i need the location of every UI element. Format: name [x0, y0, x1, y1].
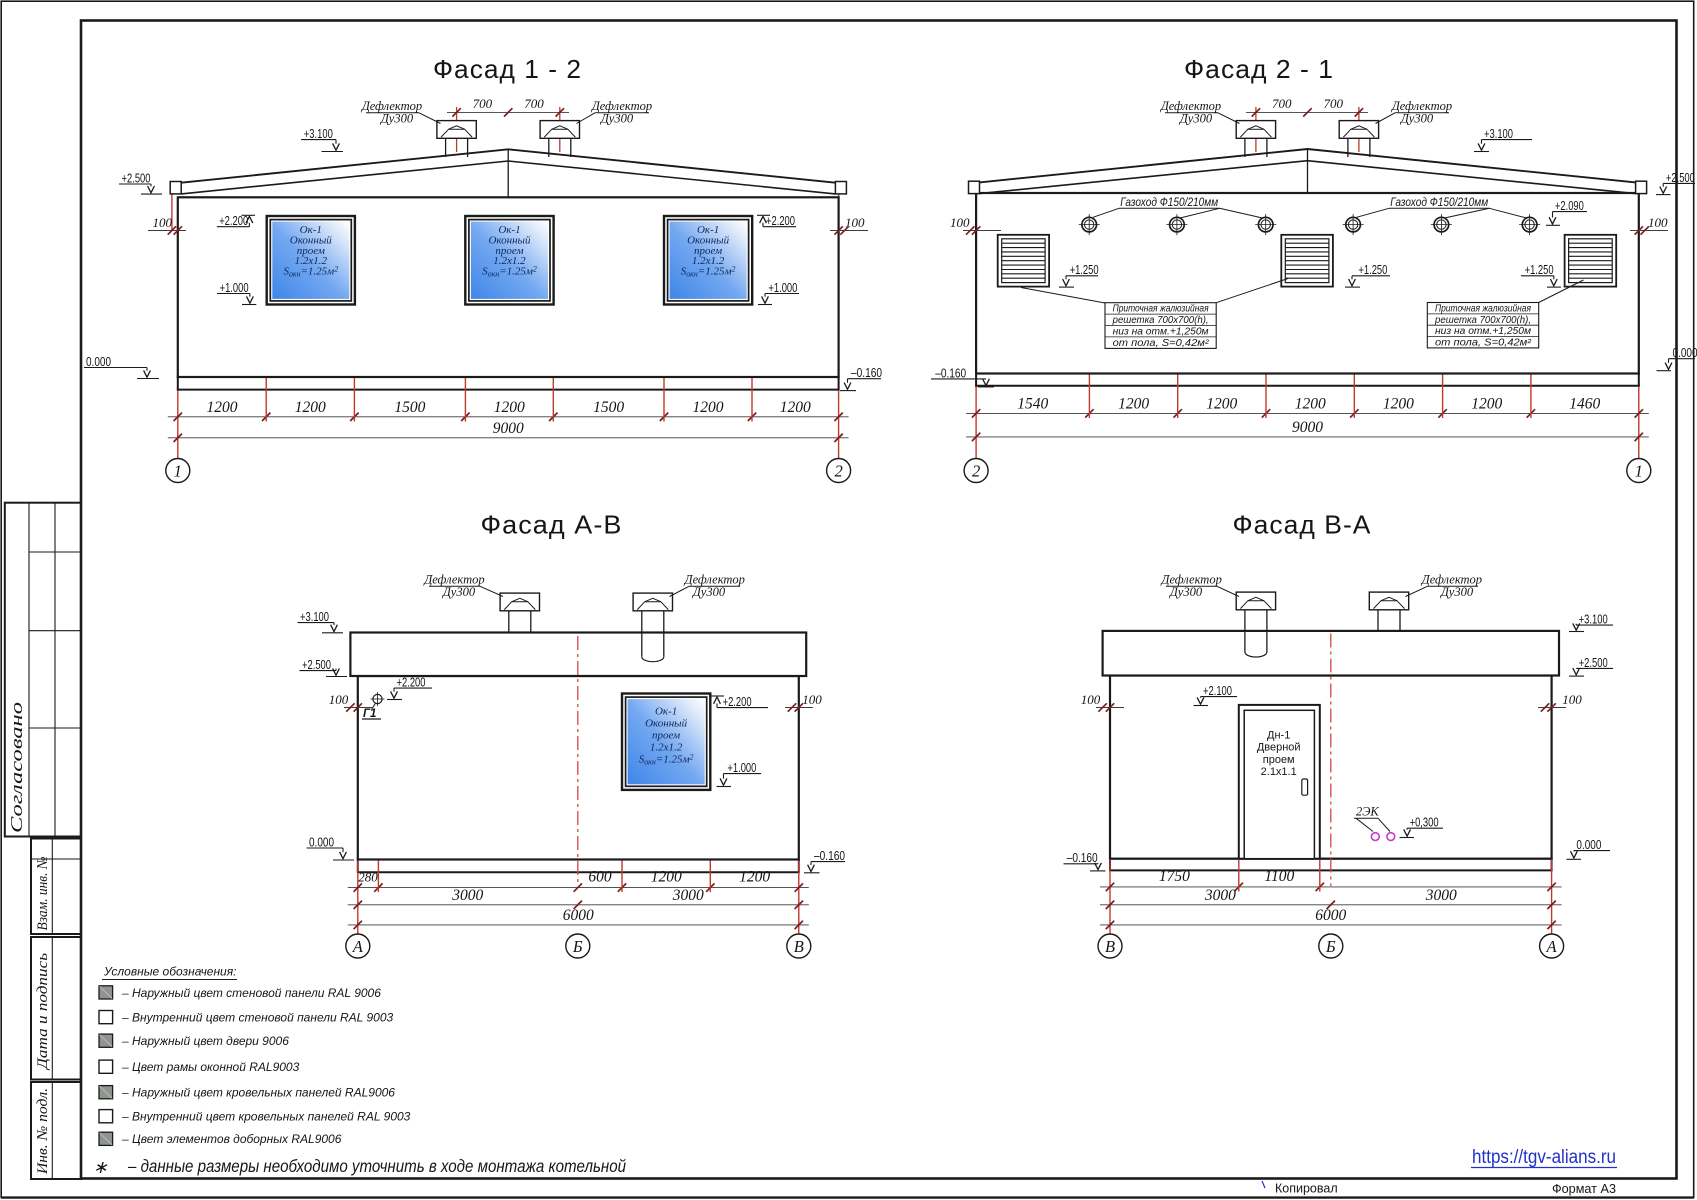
svg-text:Ду300: Ду300	[692, 585, 726, 599]
svg-text:Дата и подпись: Дата и подпись	[35, 953, 51, 1071]
svg-text:2.1х1.1: 2.1х1.1	[1261, 766, 1297, 778]
svg-text:Приточная жалюзийная: Приточная жалюзийная	[1113, 304, 1210, 315]
svg-text:1200: 1200	[693, 399, 724, 416]
svg-text:2: 2	[834, 461, 842, 480]
svg-text:Ду300: Ду300	[442, 585, 476, 599]
svg-text:+2.090: +2.090	[1555, 199, 1584, 213]
svg-text:9000: 9000	[493, 420, 524, 437]
svg-text:– Наружный цвет стеновой пане: – Наружный цвет стеновой панели RAL 9006	[121, 986, 381, 1000]
svg-text:Условные обозначения:: Условные обозначения:	[103, 965, 236, 979]
svg-text:100: 100	[802, 692, 822, 707]
svg-text:В: В	[1105, 937, 1115, 956]
svg-text:+1.250: +1.250	[1070, 263, 1099, 277]
svg-text:+2.500: +2.500	[1666, 171, 1695, 185]
svg-text:700: 700	[473, 96, 493, 111]
svg-text:2ЭК: 2ЭК	[1356, 805, 1379, 819]
svg-text:– Наружный цвет кровельных па: – Наружный цвет кровельных панелей RAL90…	[121, 1086, 395, 1100]
svg-text:Оконный: Оконный	[645, 718, 688, 730]
svg-text:100: 100	[1648, 215, 1668, 230]
svg-text:+1.250: +1.250	[1358, 263, 1387, 277]
svg-text:6000: 6000	[1315, 907, 1346, 924]
svg-text:1200: 1200	[1118, 395, 1149, 412]
svg-text:Инв. № подл.: Инв. № подл.	[35, 1088, 51, 1175]
svg-text:Газоход Ф150/210мм: Газоход Ф150/210мм	[1390, 195, 1488, 209]
svg-text:1750: 1750	[1159, 868, 1190, 885]
svg-text:+1.000: +1.000	[727, 761, 756, 775]
svg-text:+0,300: +0,300	[1410, 816, 1439, 830]
svg-text:1: 1	[174, 461, 182, 480]
svg-text:https://tgv-alians.ru: https://tgv-alians.ru	[1472, 1147, 1616, 1168]
svg-text:1200: 1200	[494, 399, 525, 416]
svg-text:1460: 1460	[1569, 395, 1600, 412]
svg-text:–0.160: –0.160	[851, 366, 882, 380]
svg-text:Приточная жалюзийная: Приточная жалюзийная	[1435, 303, 1532, 314]
svg-text:0.000: 0.000	[86, 355, 111, 369]
svg-text:+1.000: +1.000	[768, 281, 797, 295]
svg-text:3000: 3000	[1425, 887, 1457, 904]
svg-text:∗: ∗	[93, 1157, 108, 1177]
svg-text:В: В	[794, 937, 804, 956]
svg-text:6000: 6000	[563, 907, 594, 924]
svg-text:1200: 1200	[1206, 395, 1237, 412]
svg-text:600: 600	[588, 869, 612, 886]
svg-text:1200: 1200	[651, 869, 682, 886]
svg-text:1: 1	[1635, 461, 1643, 480]
svg-text:Взам. инв. №: Взам. инв. №	[35, 857, 51, 931]
svg-text:0.000: 0.000	[1576, 838, 1601, 852]
svg-text:– данные размеры необходимо у: – данные размеры необходимо уточнить в х…	[127, 1156, 626, 1176]
svg-text:1500: 1500	[394, 399, 425, 416]
svg-text:100: 100	[1081, 692, 1101, 707]
svg-text:+2.500: +2.500	[302, 658, 331, 672]
svg-text:Фасад В-А: Фасад В-А	[1233, 510, 1372, 540]
svg-text:+3.100: +3.100	[1579, 613, 1608, 627]
svg-text:–0.160: –0.160	[1067, 851, 1098, 865]
svg-text:1200: 1200	[1471, 395, 1502, 412]
svg-text:+3.100: +3.100	[1484, 127, 1513, 141]
svg-text:– Наружный цвет двери 9006: – Наружный цвет двери 9006	[121, 1034, 289, 1048]
svg-text:от пола, S=0,42м²: от пола, S=0,42м²	[1113, 338, 1210, 349]
svg-text:Дн-1: Дн-1	[1267, 730, 1290, 742]
svg-text:проем: проем	[652, 730, 680, 742]
svg-text:100: 100	[329, 692, 349, 707]
svg-text:– Внутренний цвет стеновой па: – Внутренний цвет стеновой панели RAL 90…	[121, 1011, 393, 1025]
svg-text:700: 700	[524, 96, 544, 111]
svg-text:1.2х1.2: 1.2х1.2	[650, 741, 683, 753]
svg-text:280: 280	[358, 870, 378, 885]
svg-text:+2.500: +2.500	[122, 171, 151, 185]
svg-text:Фасад 2 - 1: Фасад 2 - 1	[1184, 54, 1334, 84]
svg-text:1540: 1540	[1017, 395, 1048, 412]
svg-text:1200: 1200	[1383, 395, 1414, 412]
svg-text:Ду300: Ду300	[380, 112, 414, 126]
svg-text:2: 2	[972, 461, 980, 480]
svg-text:Г1: Г1	[363, 708, 376, 720]
svg-text:Фасад 1 - 2: Фасад 1 - 2	[433, 54, 582, 84]
svg-text:3000: 3000	[1204, 887, 1236, 904]
svg-text:Ду300: Ду300	[1400, 112, 1434, 126]
svg-text:+2.500: +2.500	[1579, 656, 1608, 670]
svg-text:100: 100	[950, 215, 970, 230]
svg-text:Фасад А-В: Фасад А-В	[481, 510, 623, 540]
svg-text:+1.250: +1.250	[1525, 263, 1554, 277]
svg-text:0.000: 0.000	[309, 835, 334, 849]
svg-text:1200: 1200	[295, 399, 326, 416]
svg-text:Б: Б	[1325, 937, 1336, 956]
svg-text:Ду300: Ду300	[1169, 585, 1203, 599]
svg-text:1200: 1200	[780, 399, 811, 416]
svg-text:+2.200: +2.200	[219, 214, 248, 228]
svg-text:низ на отм.+1,250м: низ на отм.+1,250м	[1435, 326, 1531, 337]
svg-text:А: А	[352, 937, 364, 956]
svg-text:1500: 1500	[593, 399, 624, 416]
svg-text:Согласовано: Согласовано	[7, 702, 26, 833]
svg-text:Б: Б	[572, 937, 583, 956]
svg-text:Ок-1: Ок-1	[655, 706, 677, 718]
svg-text:Копировал: Копировал	[1275, 1182, 1338, 1196]
svg-text:1100: 1100	[1264, 868, 1294, 885]
svg-text:низ на отм.+1,250м: низ на отм.+1,250м	[1113, 326, 1209, 337]
svg-text:+1.000: +1.000	[220, 281, 249, 295]
svg-text:А: А	[1546, 937, 1558, 956]
svg-text:– Внутренний цвет кровельных: – Внутренний цвет кровельных панелей RAL…	[121, 1110, 411, 1124]
svg-text:+3.100: +3.100	[304, 127, 333, 141]
svg-text:+2.200: +2.200	[397, 676, 426, 690]
svg-text:Ду300: Ду300	[600, 112, 634, 126]
svg-text:–0.160: –0.160	[935, 366, 966, 380]
svg-text:решетка 700х700(h),: решетка 700х700(h),	[1434, 315, 1531, 326]
svg-text:– Цвет элементов доборных RAL: – Цвет элементов доборных RAL9006	[121, 1132, 342, 1146]
svg-text:+2.200: +2.200	[723, 695, 752, 709]
svg-text:1200: 1200	[207, 399, 238, 416]
svg-text:решетка 700х700(h),: решетка 700х700(h),	[1112, 315, 1209, 326]
svg-text:3000: 3000	[451, 887, 483, 904]
svg-text:9000: 9000	[1292, 419, 1323, 436]
svg-text:Дверной: Дверной	[1257, 742, 1301, 754]
svg-text:700: 700	[1272, 96, 1292, 111]
svg-text:–0.160: –0.160	[814, 849, 845, 863]
svg-text:Ду300: Ду300	[1179, 112, 1213, 126]
svg-text:+3.100: +3.100	[300, 610, 329, 624]
svg-text:Газоход Ф150/210мм: Газоход Ф150/210мм	[1120, 195, 1218, 209]
svg-text:700: 700	[1323, 96, 1343, 111]
svg-text:1200: 1200	[1295, 395, 1326, 412]
svg-text:3000: 3000	[672, 887, 704, 904]
svg-text:100: 100	[1562, 692, 1582, 707]
svg-text:0.000: 0.000	[1673, 346, 1697, 360]
svg-text:– Цвет рамы оконной RAL9003: – Цвет рамы оконной RAL9003	[121, 1060, 300, 1074]
svg-text:Ду300: Ду300	[1440, 585, 1474, 599]
svg-text:проем: проем	[1263, 754, 1295, 766]
svg-text:1200: 1200	[739, 869, 770, 886]
svg-text:от пола, S=0,42м²: от пола, S=0,42м²	[1435, 338, 1532, 349]
svg-text:+2.200: +2.200	[766, 214, 795, 228]
svg-text:+2.100: +2.100	[1203, 684, 1232, 698]
svg-text:Формат А3: Формат А3	[1552, 1182, 1616, 1196]
svg-text:100: 100	[153, 215, 173, 230]
